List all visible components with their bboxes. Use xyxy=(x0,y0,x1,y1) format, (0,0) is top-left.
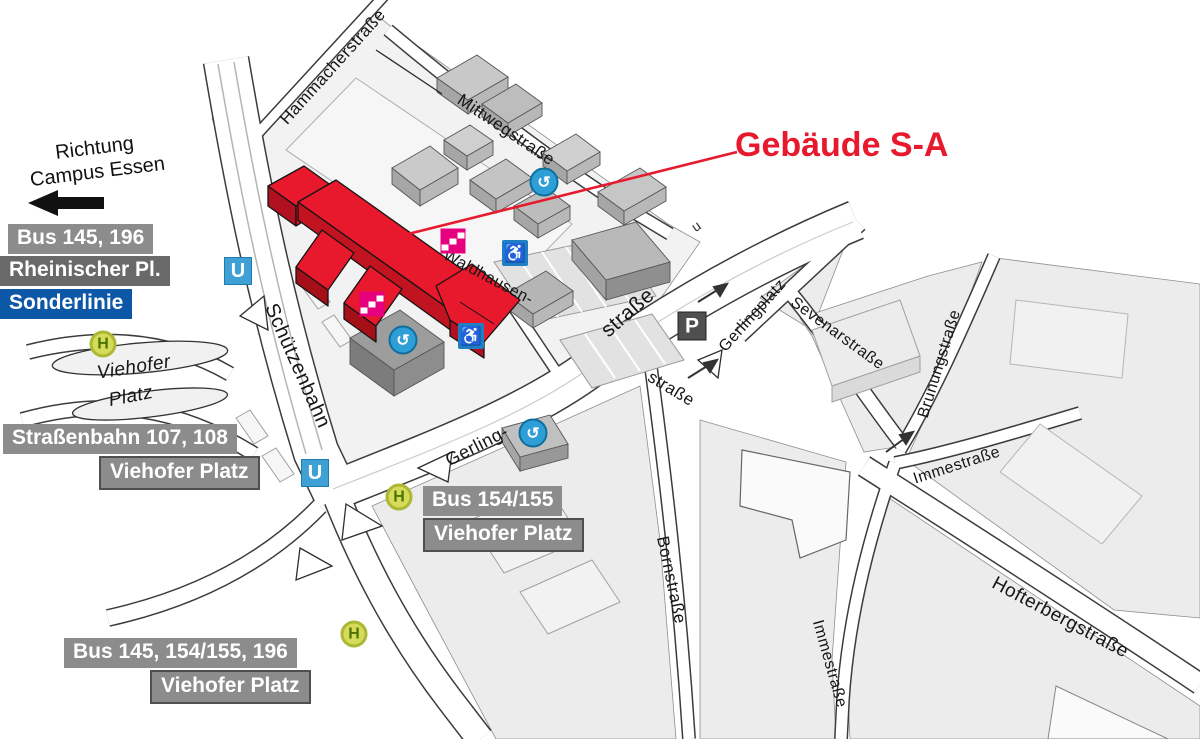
circular-entrance-icon: ↺ xyxy=(389,326,418,355)
badge-bus-154-155: Bus 154/155 xyxy=(423,486,562,516)
stairs-icon xyxy=(360,292,385,317)
stairs-icon xyxy=(441,229,466,254)
circular-entrance-icon: ↺ xyxy=(530,168,559,197)
badge-sonderlinie: Sonderlinie xyxy=(0,289,132,319)
parking-icon: P xyxy=(678,312,707,341)
badge-strassenbahn-107-108: Straßenbahn 107, 108 xyxy=(3,424,237,454)
badge-viehofer-platz-tram: Viehofer Platz xyxy=(99,456,260,490)
building-title: Gebäude S-A xyxy=(735,126,948,165)
badge-rheinischer-pl: Rheinischer Pl. xyxy=(0,256,170,286)
wheelchair-access-icon: ♿ xyxy=(502,240,528,266)
badge-viehofer-platz-bus: Viehofer Platz xyxy=(423,518,584,552)
tram-stop-icon: H xyxy=(90,331,117,358)
circular-entrance-icon: ↺ xyxy=(519,419,548,448)
badge-bus-145-196: Bus 145, 196 xyxy=(8,224,153,254)
campus-map: Hammacherstraße Mittwegstraße Schützenba… xyxy=(0,0,1200,739)
wheelchair-access-icon: ♿ xyxy=(458,323,484,349)
tram-stop-icon: H xyxy=(341,621,368,648)
map-canvas xyxy=(0,0,1200,739)
badge-viehofer-platz-bus-south: Viehofer Platz xyxy=(150,670,311,704)
tram-stop-icon: H xyxy=(386,484,413,511)
road-southwest xyxy=(108,506,320,618)
badge-bus-145-154-155-196: Bus 145, 154/155, 196 xyxy=(64,638,297,668)
subway-station-icon: U xyxy=(224,257,252,285)
direction-arrow xyxy=(28,190,104,216)
subway-station-icon: U xyxy=(301,459,329,487)
